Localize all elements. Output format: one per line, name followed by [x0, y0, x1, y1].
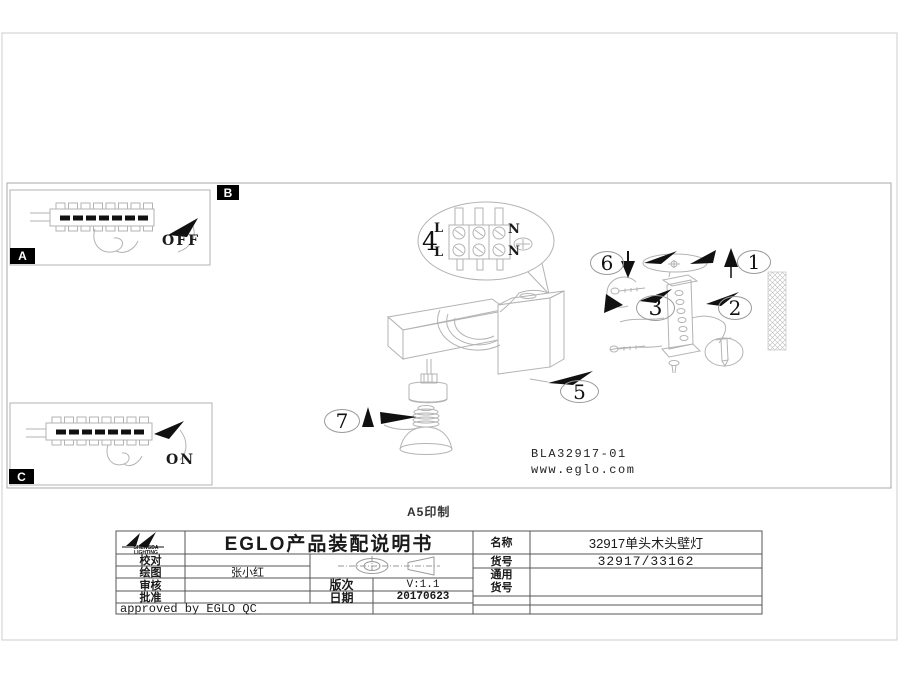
projection-symbol [338, 556, 440, 576]
item-label: 货号 [474, 554, 529, 568]
part-callout-4: 4 [422, 227, 438, 256]
section-label-a: A [10, 248, 35, 264]
common-item-label-line1: 通用 [491, 569, 513, 582]
panel-a-box [10, 190, 210, 265]
arrow-part7-icon [380, 412, 417, 424]
section-label-b: B [217, 185, 239, 200]
assembly-instruction-sheet: { "page": { "print_note": "A5印制" }, "col… [0, 0, 900, 675]
arrow-part7-up-icon [362, 407, 374, 427]
switch-drawing-on [26, 417, 186, 466]
name-label: 名称 [474, 531, 529, 553]
drawing-code: BLA32917-01 [531, 447, 627, 461]
website-text: www.eglo.com [531, 463, 635, 477]
terminal-n-bottom-label: N [508, 244, 520, 259]
part-callout-3: 3 [636, 295, 675, 321]
terminal-n-top-label: N [508, 222, 520, 237]
date-value: 20170623 [374, 591, 472, 603]
part-callout-2: 2 [718, 296, 752, 320]
part-callout-7: 7 [324, 409, 360, 433]
version-value: V:1.1 [374, 578, 472, 591]
name-value: 32917单头木头壁灯 [531, 531, 761, 553]
lamp-drawing [388, 291, 564, 374]
wall-hatch [768, 272, 786, 350]
rocker-dashes [56, 430, 144, 435]
terminal-block-drawing [449, 208, 532, 270]
part-callout-5: 5 [560, 380, 599, 403]
common-item-label-line2: 货号 [491, 582, 513, 595]
drawn-value: 张小红 [186, 566, 309, 578]
print-note: A5印制 [407, 503, 450, 520]
arrow-part3-tri-icon [604, 294, 623, 313]
arrow-part1-icon [724, 248, 738, 267]
arrow-canopy-right-icon [690, 250, 716, 264]
rocker-dashes [60, 216, 148, 221]
item-value: 32917/33162 [531, 554, 761, 568]
titleblock-title: EGLO产品装配说明书 [186, 531, 472, 554]
arrow-on-icon [154, 421, 184, 439]
date-label: 日期 [311, 591, 372, 603]
switch-on-label: ON [166, 452, 195, 468]
approved-note: approved by EGLO QC [120, 602, 257, 616]
switch-off-label: OFF [162, 233, 200, 249]
common-item-label: 通用 货号 [474, 568, 529, 596]
part-callout-1: 1 [737, 250, 771, 274]
part-callout-6: 6 [590, 251, 624, 275]
section-label-c: C [9, 469, 34, 484]
